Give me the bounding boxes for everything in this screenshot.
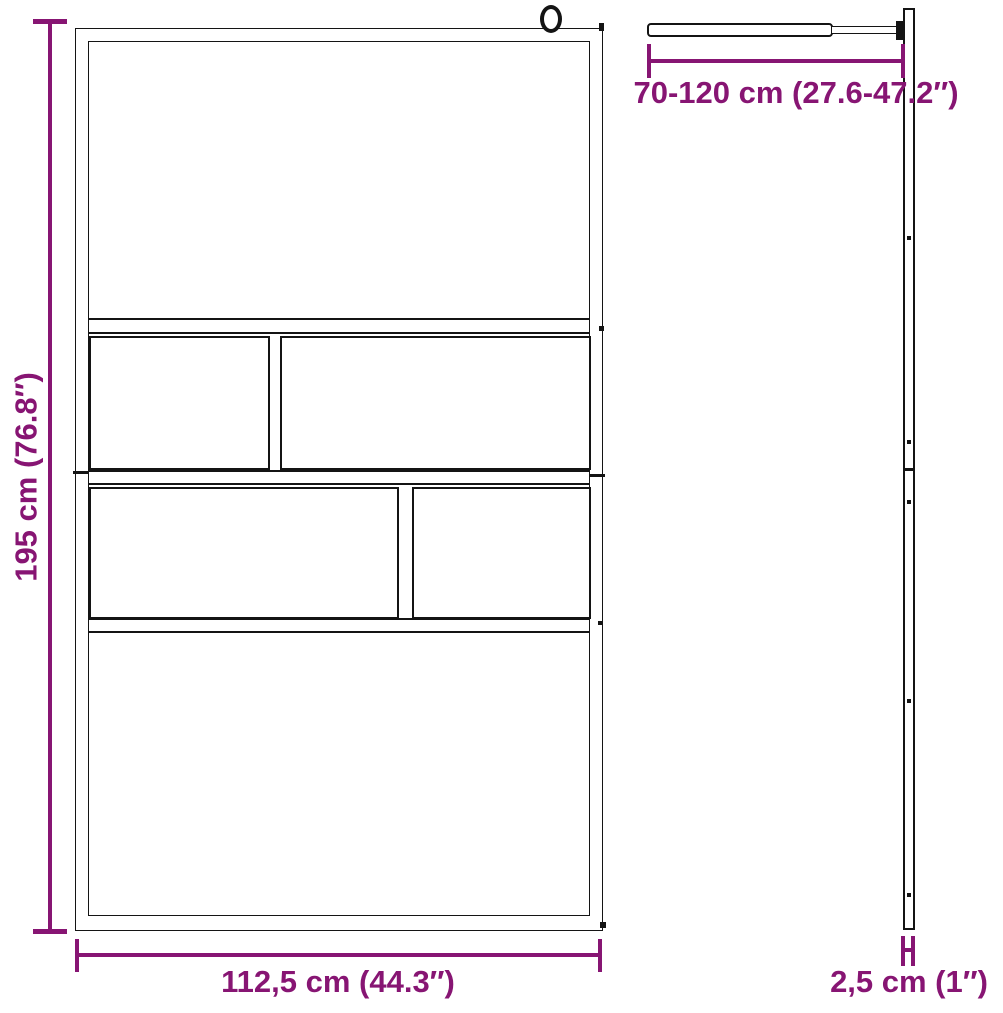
width-dimension-line (75, 953, 602, 957)
screw-dot (907, 500, 911, 504)
frame-joint-left (73, 471, 89, 474)
thickness-dimension-bridge (901, 948, 915, 952)
frame-top-right-joint (599, 23, 604, 31)
screw-dot (907, 440, 911, 444)
glass-brick (89, 487, 399, 619)
glass-brick (412, 487, 591, 619)
frame-corner-dot (600, 922, 606, 928)
frame-screw-dot (598, 621, 603, 625)
width-dimension-tick-right (598, 939, 602, 972)
width-dimension-tick-left (75, 939, 79, 972)
frame-joint-right (589, 474, 605, 477)
support-dimension-tick-left (647, 44, 651, 78)
glass-brick (280, 336, 591, 470)
glass-mullion-band (89, 618, 589, 633)
support-bar-rod (831, 26, 901, 34)
front-glass-panel (88, 41, 590, 916)
screw-dot (907, 699, 911, 703)
support-dimension-tick-right (901, 44, 905, 78)
height-dimension-cap-bottom (33, 929, 67, 934)
support-dimension-line (647, 59, 905, 63)
screw-dot (907, 893, 911, 897)
screw-dot (907, 236, 911, 240)
glass-mullion-band (89, 318, 589, 334)
support-bar-tube (647, 23, 833, 37)
height-dimension-label: 195 cm (76.8″) (11, 372, 44, 582)
pivot-knob (540, 5, 562, 33)
support-dimension-label: 70-120 cm (27.6-47.2″) (633, 77, 958, 110)
width-dimension-label: 112,5 cm (44.3″) (221, 966, 455, 999)
glass-brick (89, 336, 270, 470)
frame-screw-dot (599, 326, 604, 331)
glass-mullion-band (89, 470, 589, 485)
side-profile-joint (903, 468, 915, 471)
thickness-dimension-label: 2,5 cm (1″) (830, 966, 988, 999)
height-dimension-line (48, 21, 52, 933)
height-dimension-cap-top (33, 19, 67, 24)
shower-wall-dimension-diagram: 195 cm (76.8″) 112,5 cm (44.3″) 70-120 c… (0, 0, 1003, 1013)
